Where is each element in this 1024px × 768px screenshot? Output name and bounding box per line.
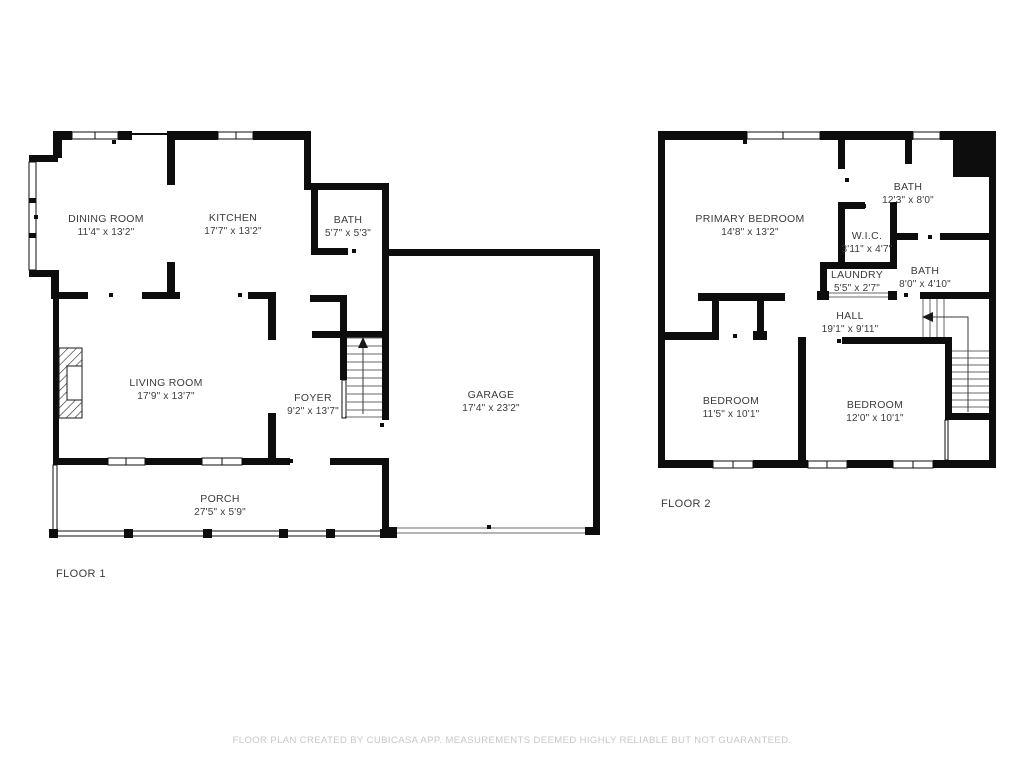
room-dims: 9'2" x 13'7"	[287, 405, 339, 418]
room-label-foyer: FOYER 9'2" x 13'7"	[287, 392, 339, 418]
room-dims: 3'11" x 4'7"	[842, 243, 893, 256]
room-name: KITCHEN	[204, 212, 261, 225]
room-dims: 5'7" x 5'3"	[325, 227, 371, 240]
room-name: DINING ROOM	[68, 213, 144, 226]
room-dims: 19'1" x 9'11"	[822, 323, 879, 336]
floor1-stairs	[342, 337, 382, 418]
room-label-kitchen: KITCHEN 17'7" x 13'2"	[204, 212, 261, 238]
room-label-bath-floor1: BATH 5'7" x 5'3"	[325, 214, 371, 240]
room-dims: 11'5" x 10'1"	[703, 408, 760, 421]
garage-door	[397, 525, 585, 533]
room-label-bath-mid: BATH 8'0" x 4'10"	[899, 265, 951, 291]
room-name: BATH	[899, 265, 951, 278]
room-name: FOYER	[287, 392, 339, 405]
room-dims: 17'4" x 23'2"	[462, 402, 519, 415]
floor1-title: FLOOR 1	[56, 568, 106, 580]
room-label-bedroom2: BEDROOM 12'0" x 10'1"	[846, 399, 903, 425]
room-name: PORCH	[194, 493, 246, 506]
room-label-bath-top: BATH 12'3" x 8'0"	[882, 181, 934, 207]
floor1-walls	[29, 131, 600, 538]
room-name: PRIMARY BEDROOM	[695, 213, 804, 226]
room-label-porch: PORCH 27'5" x 5'9"	[194, 493, 246, 519]
chimney-icon	[953, 140, 989, 177]
room-label-laundry: LAUNDRY 5'5" x 2'7"	[831, 269, 883, 295]
room-dims: 17'7" x 13'2"	[204, 225, 261, 238]
room-label-living-room: LIVING ROOM 17'9" x 13'7"	[129, 377, 202, 403]
room-label-dining-room: DINING ROOM 11'4" x 13'2"	[68, 213, 144, 239]
room-dims: 14'8" x 13'2"	[695, 226, 804, 239]
room-label-hall: HALL 19'1" x 9'11"	[822, 310, 879, 336]
room-name: LIVING ROOM	[129, 377, 202, 390]
room-label-garage: GARAGE 17'4" x 23'2"	[462, 389, 519, 415]
room-name: BEDROOM	[703, 395, 760, 408]
floor2-title: FLOOR 2	[661, 498, 711, 510]
room-label-bedroom1: BEDROOM 11'5" x 10'1"	[703, 395, 760, 421]
room-dims: 27'5" x 5'9"	[194, 506, 246, 519]
room-dims: 8'0" x 4'10"	[899, 278, 951, 291]
room-dims: 12'3" x 8'0"	[882, 194, 934, 207]
room-label-primary-bedroom: PRIMARY BEDROOM 14'8" x 13'2"	[695, 213, 804, 239]
room-name: BATH	[325, 214, 371, 227]
floorplan-page: DINING ROOM 11'4" x 13'2" KITCHEN 17'7" …	[0, 0, 1024, 768]
floor2-stairs	[922, 299, 989, 460]
room-dims: 5'5" x 2'7"	[831, 282, 883, 295]
room-name: GARAGE	[462, 389, 519, 402]
room-name: LAUNDRY	[831, 269, 883, 282]
footer-disclaimer: FLOOR PLAN CREATED BY CUBICASA APP. MEAS…	[0, 735, 1024, 746]
room-dims: 17'9" x 13'7"	[129, 390, 202, 403]
fireplace-icon	[59, 348, 82, 418]
room-name: HALL	[822, 310, 879, 323]
room-dims: 12'0" x 10'1"	[846, 412, 903, 425]
room-dims: 11'4" x 13'2"	[68, 226, 144, 239]
room-name: BEDROOM	[846, 399, 903, 412]
room-name: BATH	[882, 181, 934, 194]
room-label-wic: W.I.C. 3'11" x 4'7"	[842, 230, 893, 256]
room-name: W.I.C.	[842, 230, 893, 243]
